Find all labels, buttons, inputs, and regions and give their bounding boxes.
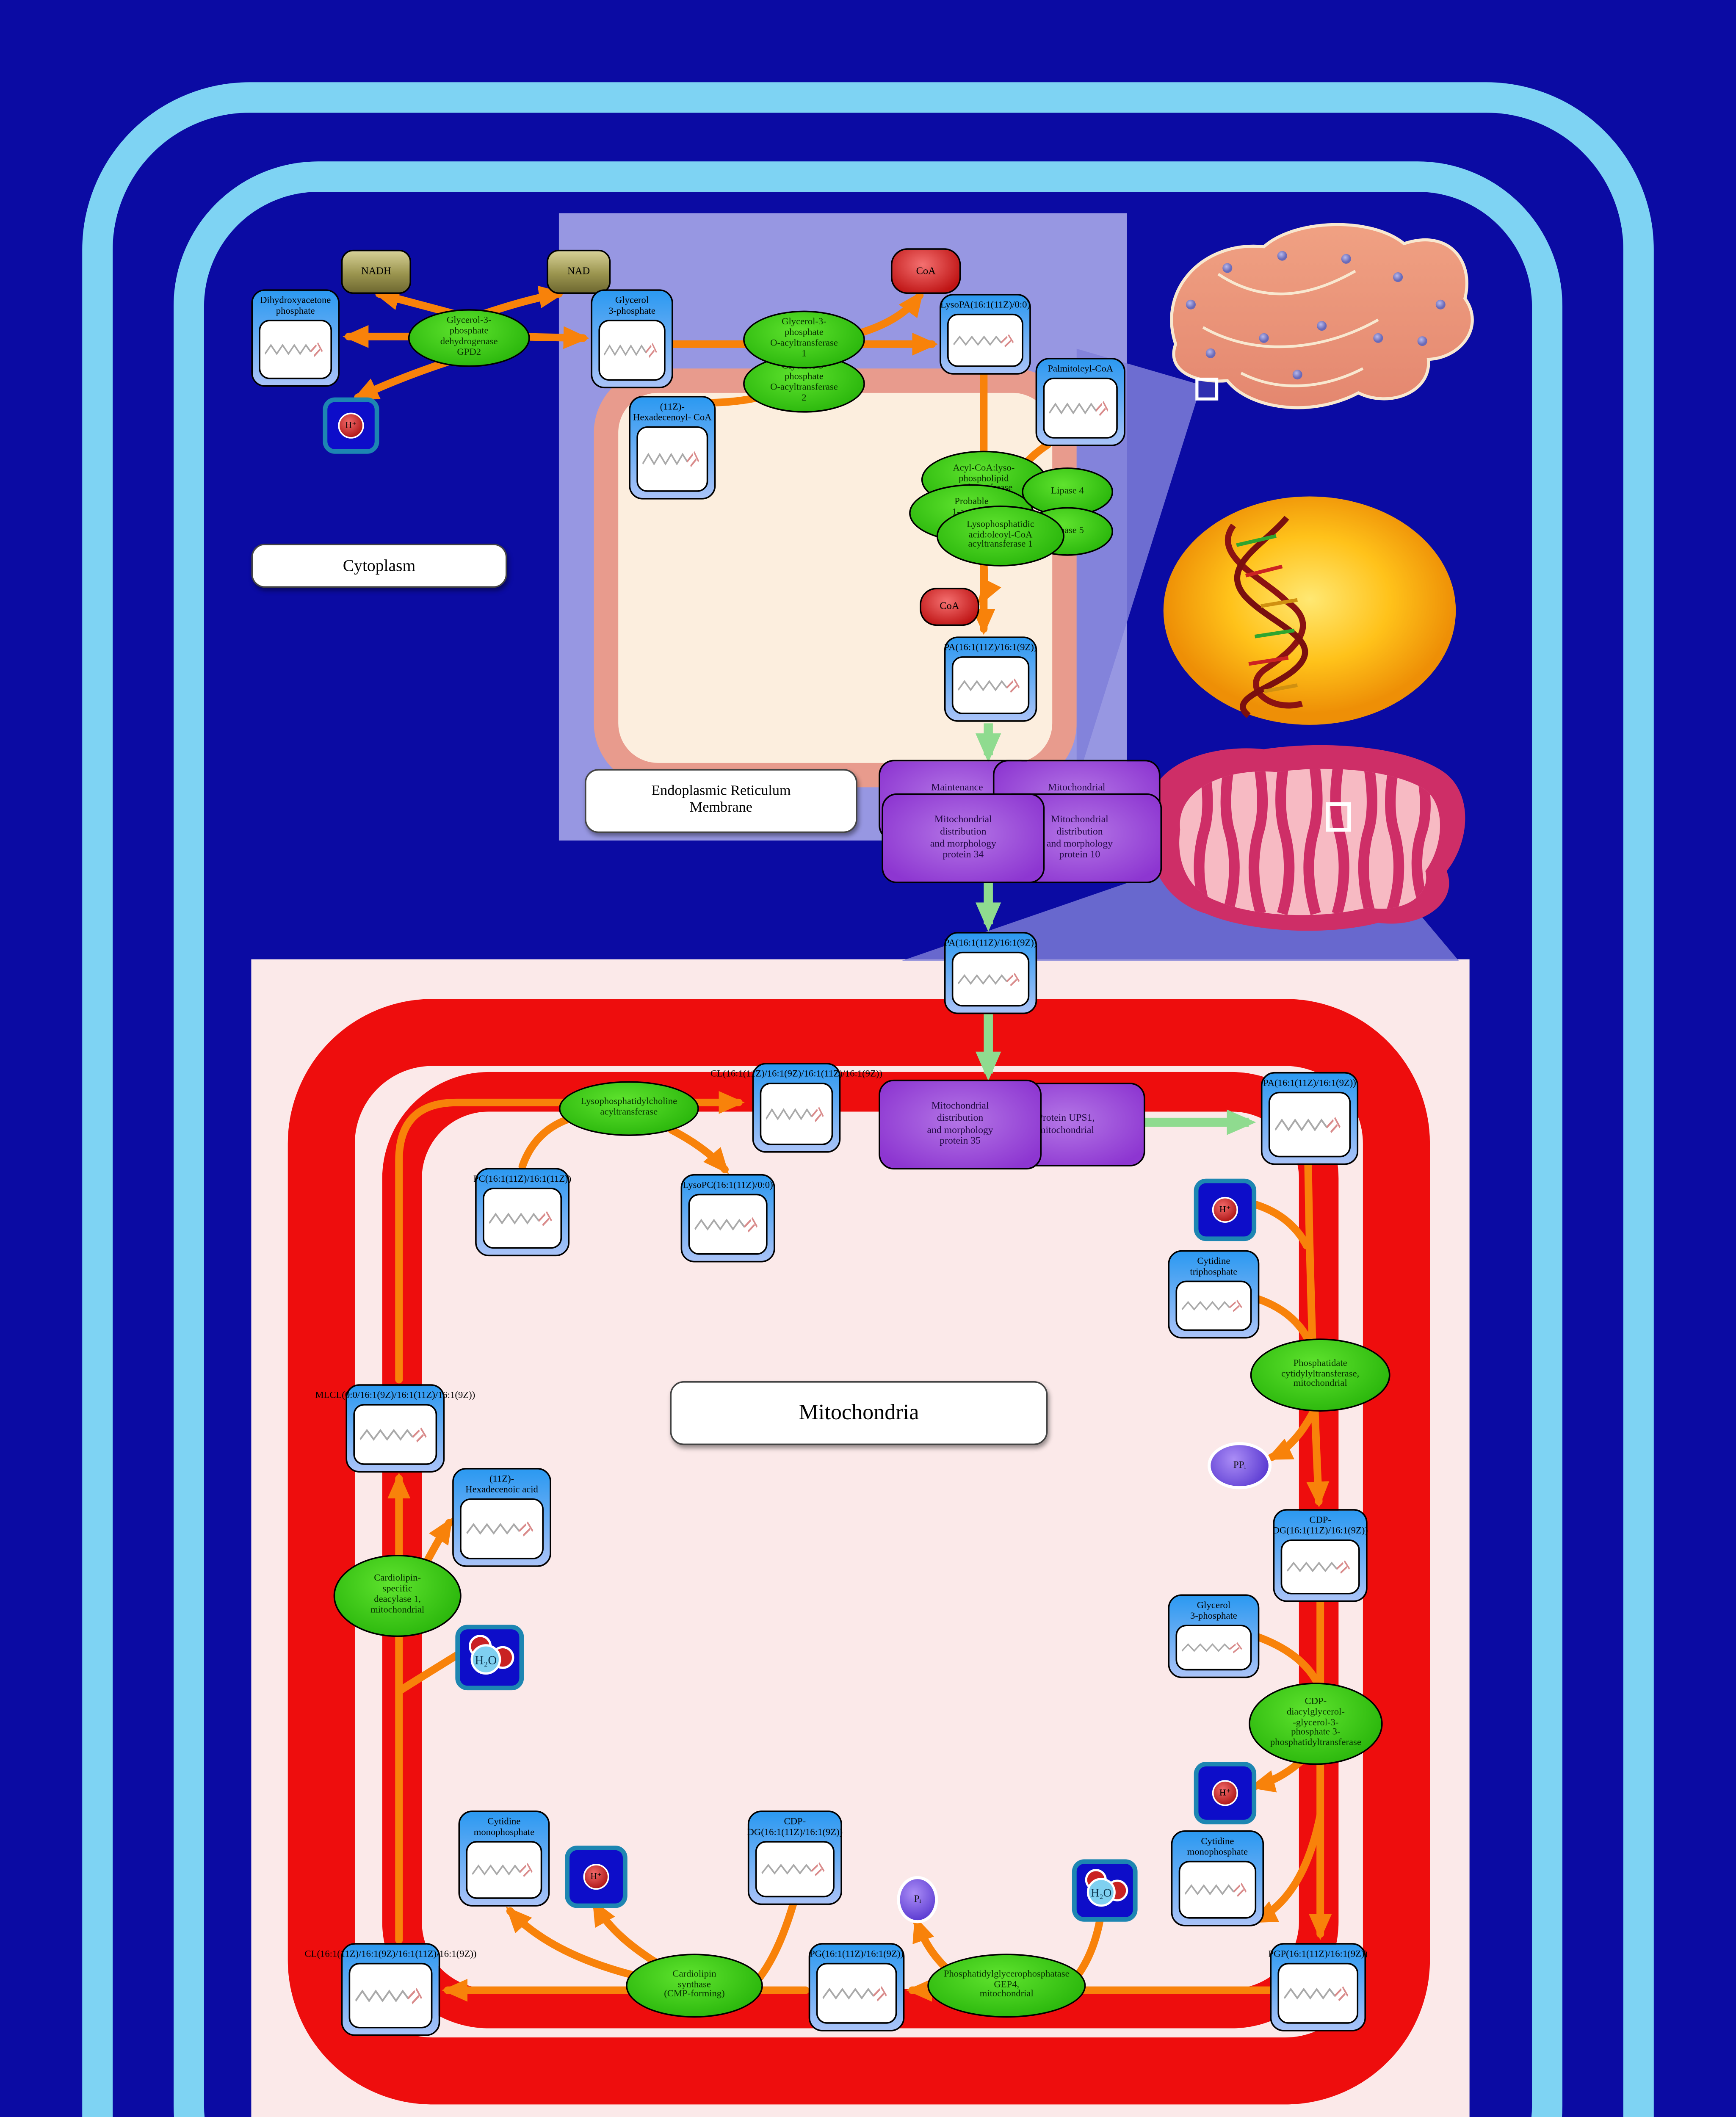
metabolite-label: LysoPA(16:1(11Z)/0:0) xyxy=(940,299,1030,310)
structure-box xyxy=(688,1193,768,1255)
structure-thumbnail xyxy=(355,1405,436,1463)
structure-box xyxy=(952,951,1029,1006)
structure-box xyxy=(353,1403,437,1465)
metabolite-label: Cytidine triphosphate xyxy=(1190,1255,1237,1277)
water-h2o-2[interactable]: H₂O xyxy=(455,1625,524,1690)
hydrogen-ion-hplus-4[interactable]: H⁺ xyxy=(565,1846,627,1908)
structure-thumbnail xyxy=(260,321,330,378)
metabolite-dhap[interactable]: Dihydroxyacetone phosphate xyxy=(251,289,340,387)
structure-thumbnail xyxy=(953,657,1028,713)
metabolite-lysopc[interactable]: LysoPC(16:1(11Z)/0:0) xyxy=(681,1174,775,1263)
structure-box xyxy=(483,1187,562,1249)
structure-thumbnail xyxy=(1270,1092,1349,1155)
svg-text:H₂O: H₂O xyxy=(475,1653,497,1667)
metabolite-g3p-mito[interactable]: Glycerol 3-phosphate xyxy=(1168,1595,1260,1678)
structure-box xyxy=(1179,1861,1256,1919)
metabolite-cdpdg-mid[interactable]: CDP- DG(16:1(11Z)/16:1(9Z)) xyxy=(748,1810,842,1905)
structure-box xyxy=(1277,1962,1358,2024)
structure-thumbnail xyxy=(350,1964,431,2027)
structure-thumbnail xyxy=(1045,379,1116,437)
metabolite-g3p-er[interactable]: Glycerol 3-phosphate xyxy=(591,289,673,388)
metabolite-label: MLCL(0:0/16:1(9Z)/16:1(11Z)/16:1(9Z)) xyxy=(315,1390,475,1401)
structure-thumbnail xyxy=(467,1843,541,1897)
structure-thumbnail xyxy=(953,953,1028,1005)
structure-thumbnail xyxy=(1180,1863,1255,1917)
structure-thumbnail xyxy=(690,1194,766,1253)
structure-box xyxy=(1043,377,1118,439)
structure-thumbnail xyxy=(1177,1282,1250,1329)
metabolite-cmp-left[interactable]: Cytidine monophosphate xyxy=(459,1810,550,1907)
phosphate-pi[interactable]: Pᵢ xyxy=(897,1876,938,1923)
structure-thumbnail xyxy=(1279,1964,1357,2022)
metabolite-pa-matrix[interactable]: PA(16:1(11Z)/16:1(9Z)) xyxy=(1261,1072,1358,1165)
enzyme-lpcat[interactable]: Lysophosphatidylcholine acyltransferase xyxy=(559,1081,699,1136)
er-membrane-label: Endoplasmic Reticulum Membrane xyxy=(585,769,857,833)
metabolite-label: Cytidine monophosphate xyxy=(1187,1836,1248,1858)
metabolite-label: LysoPC(16:1(11Z)/0:0) xyxy=(683,1179,773,1190)
enzyme-pct-mito[interactable]: Phosphatidate cytidylyltransferase, mito… xyxy=(1250,1338,1390,1412)
h-plus-circle: H⁺ xyxy=(1212,1197,1238,1223)
water-molecule-icon: H₂O xyxy=(460,1629,519,1686)
cofactor-nad[interactable]: NAD xyxy=(547,250,611,294)
structure-box xyxy=(460,1498,544,1559)
h-plus-circle: H⁺ xyxy=(1212,1780,1238,1806)
metabolite-pgp[interactable]: PGP(16:1(11Z)/16:1(9Z)) xyxy=(1270,1943,1366,2031)
nucleus-dna-illustration xyxy=(1164,496,1456,724)
protein-mdm34[interactable]: Mitochondrial distribution and morpholog… xyxy=(882,793,1045,883)
structure-box xyxy=(1269,1091,1351,1157)
metabolite-cdpdg-right[interactable]: CDP- DG(16:1(11Z)/16:1(9Z)) xyxy=(1273,1509,1368,1602)
metabolite-label: Cytidine monophosphate xyxy=(474,1816,534,1838)
cofactor-nadh[interactable]: NADH xyxy=(341,250,411,294)
metabolite-cmp-right[interactable]: Cytidine monophosphate xyxy=(1171,1830,1264,1926)
enzyme-cdp-dag-gp[interactable]: CDP- diacylglycerol- -glycerol-3- phosph… xyxy=(1249,1683,1382,1765)
metabolite-pc[interactable]: PC(16:1(11Z)/16:1(11Z)) xyxy=(475,1168,569,1257)
metabolite-pa-er[interactable]: PA(16:1(11Z)/16:1(9Z)) xyxy=(944,636,1037,721)
water-h2o-1[interactable]: H₂O xyxy=(1072,1859,1138,1921)
enzyme-gpd2[interactable]: Glycerol-3- phosphate dehydrogenase GPD2 xyxy=(408,309,530,367)
metabolite-cl-top[interactable]: CL(16:1(11Z)/16:1(9Z)/16:1(11Z)/16:1(9Z)… xyxy=(752,1063,841,1152)
metabolite-mlcl[interactable]: MLCL(0:0/16:1(9Z)/16:1(11Z)/16:1(9Z)) xyxy=(346,1384,445,1473)
metabolite-label: PA(16:1(11Z)/16:1(9Z)) xyxy=(944,937,1037,948)
structure-box xyxy=(1175,1625,1252,1670)
metabolite-label: CL(16:1(11Z)/16:1(9Z)/16:1(11Z)/16:1(9Z)… xyxy=(305,1948,477,1959)
metabolite-label: PGP(16:1(11Z)/16:1(9Z)) xyxy=(1269,1948,1368,1959)
structure-thumbnail xyxy=(949,315,1022,365)
metabolite-label: Palmitoleyl-CoA xyxy=(1048,363,1113,374)
structure-box xyxy=(755,1841,835,1897)
metabolite-label: PA(16:1(11Z)/16:1(9Z)) xyxy=(1263,1078,1356,1089)
cofactor-coa-1[interactable]: CoA xyxy=(891,248,961,294)
hydrogen-ion-hplus-1[interactable]: H⁺ xyxy=(323,398,379,454)
metabolite-label: CDP- DG(16:1(11Z)/16:1(9Z)) xyxy=(747,1816,843,1838)
protein-mdm35[interactable]: Mitochondrial distribution and morpholog… xyxy=(879,1080,1042,1169)
structure-thumbnail xyxy=(1282,1541,1358,1593)
metabolite-label: CL(16:1(11Z)/16:1(9Z)/16:1(11Z)/16:1(9Z)… xyxy=(710,1068,882,1079)
enzyme-cld1[interactable]: Cardiolipin- specific deacylase 1, mitoc… xyxy=(334,1555,462,1637)
structure-box xyxy=(259,320,332,379)
structure-box xyxy=(1281,1539,1360,1594)
structure-box xyxy=(1175,1281,1252,1331)
structure-box xyxy=(952,655,1029,714)
metabolite-label: Glycerol 3-phosphate xyxy=(1190,1600,1237,1622)
metabolite-pg[interactable]: PG(16:1(11Z)/16:1(9Z)) xyxy=(809,1943,905,2031)
structure-box xyxy=(349,1962,433,2028)
structure-thumbnail xyxy=(462,1500,542,1558)
structure-box xyxy=(760,1082,833,1145)
structure-box xyxy=(947,313,1023,367)
structure-box xyxy=(598,320,665,381)
structure-box xyxy=(636,426,708,492)
enzyme-cls[interactable]: Cardiolipin synthase (CMP-forming) xyxy=(626,1954,763,2018)
enzyme-gep4[interactable]: Phosphatidylglycerophosphatase GEP4, mit… xyxy=(927,1954,1086,2018)
metabolite-label: CDP- DG(16:1(11Z)/16:1(9Z)) xyxy=(1272,1515,1368,1537)
metabolite-ctp[interactable]: Cytidine triphosphate xyxy=(1168,1250,1260,1339)
structure-box xyxy=(816,1962,897,2024)
mitochondria-label: Mitochondria xyxy=(670,1381,1048,1445)
structure-thumbnail xyxy=(638,428,707,490)
enzyme-lpaat1[interactable]: Lysophosphatidic acid:oleoyl-CoA acyltra… xyxy=(937,506,1064,567)
pathway-diagram: Maintenance mitochondrial morphologyMito… xyxy=(0,0,1736,2117)
metabolite-hexadecenoyl-coa[interactable]: (11Z)- Hexadecenoyl- CoA xyxy=(629,396,716,500)
structure-thumbnail xyxy=(1177,1626,1250,1669)
structure-thumbnail xyxy=(484,1188,561,1247)
metabolite-label: Dihydroxyacetone phosphate xyxy=(260,295,331,317)
metabolite-lysopa[interactable]: LysoPA(16:1(11Z)/0:0) xyxy=(940,294,1031,375)
structure-box xyxy=(466,1841,542,1899)
phosphate-ppi[interactable]: PPᵢ xyxy=(1208,1442,1272,1489)
cytoplasm-label: Cytoplasm xyxy=(251,544,507,588)
h-plus-circle: H⁺ xyxy=(338,413,364,439)
h-plus-circle: H⁺ xyxy=(583,1864,609,1890)
metabolite-label: PG(16:1(11Z)/16:1(9Z)) xyxy=(810,1948,904,1959)
structure-thumbnail xyxy=(761,1083,831,1144)
structure-thumbnail xyxy=(600,321,664,379)
metabolite-label: PC(16:1(11Z)/16:1(11Z)) xyxy=(473,1173,571,1184)
metabolite-pa-ims[interactable]: PA(16:1(11Z)/16:1(9Z)) xyxy=(944,932,1037,1014)
cofactor-coa-2[interactable]: CoA xyxy=(920,588,979,626)
enzyme-gpat1[interactable]: Glycerol-3- phosphate O-acyltransferase … xyxy=(743,311,865,369)
metabolite-label: Glycerol 3-phosphate xyxy=(608,295,655,317)
er-zoom-square xyxy=(1197,379,1217,399)
metabolite-label: PA(16:1(11Z)/16:1(9Z)) xyxy=(944,642,1037,653)
metabolite-label: (11Z)- Hexadecenoyl- CoA xyxy=(633,401,712,423)
endoplasmic-reticulum-illustration xyxy=(1172,224,1472,407)
mitochondrion-illustration xyxy=(1149,745,1465,931)
water-molecule-icon: H₂O xyxy=(1077,1864,1133,1917)
structure-thumbnail xyxy=(818,1964,895,2022)
structure-thumbnail xyxy=(757,1843,833,1896)
metabolite-hexadecenoic-acid[interactable]: (11Z)- Hexadecenoic acid xyxy=(452,1468,551,1567)
hydrogen-ion-hplus-3[interactable]: H⁺ xyxy=(1194,1762,1256,1824)
hydrogen-ion-hplus-2[interactable]: H⁺ xyxy=(1194,1179,1256,1241)
metabolite-palmitoleyl-coa[interactable]: Palmitoleyl-CoA xyxy=(1036,358,1125,446)
metabolite-cl-bottom[interactable]: CL(16:1(11Z)/16:1(9Z)/16:1(11Z)/16:1(9Z)… xyxy=(341,1943,440,2036)
svg-text:H₂O: H₂O xyxy=(1091,1887,1111,1899)
metabolite-label: (11Z)- Hexadecenoic acid xyxy=(465,1473,538,1495)
